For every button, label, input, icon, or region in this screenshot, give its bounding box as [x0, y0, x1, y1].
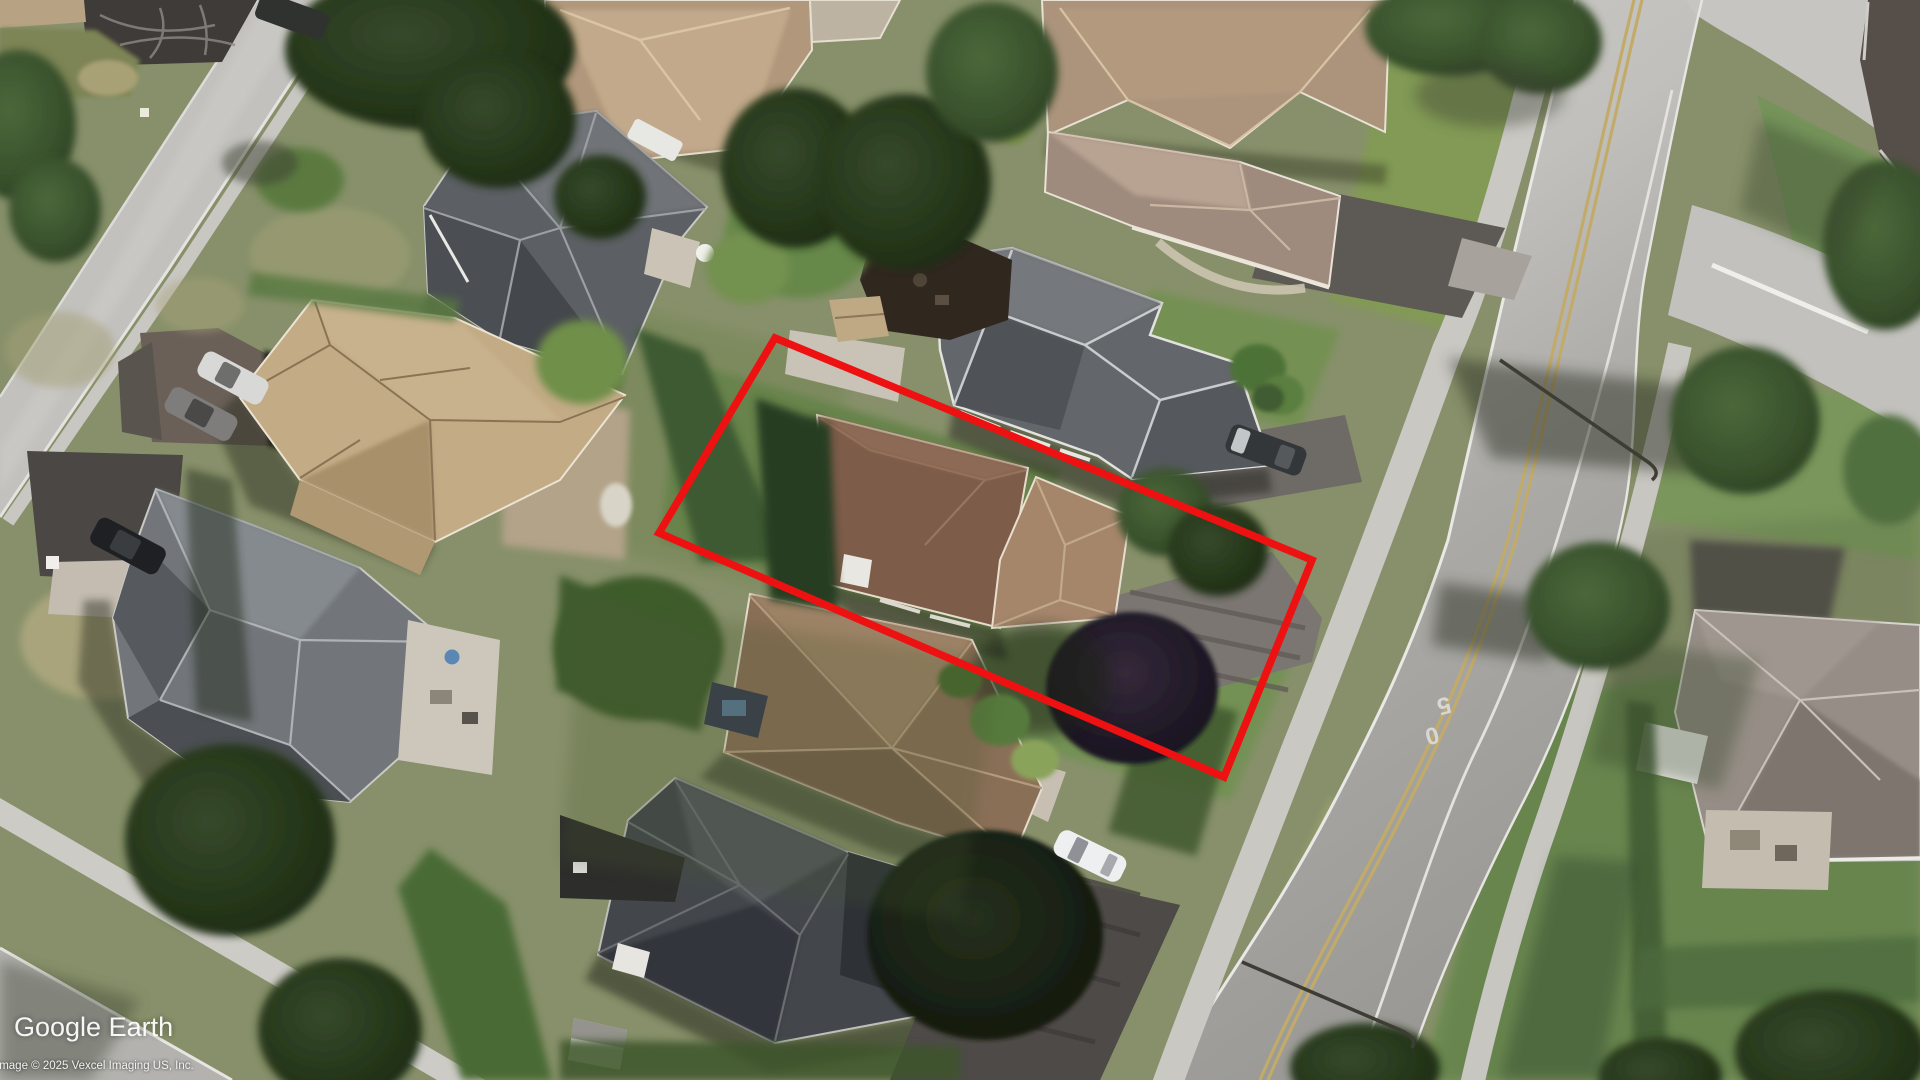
svg-text:Google Earth: Google Earth [14, 1012, 173, 1042]
svg-text:Image © 2025 Vexcel Imaging US: Image © 2025 Vexcel Imaging US, Inc. [0, 1060, 194, 1072]
